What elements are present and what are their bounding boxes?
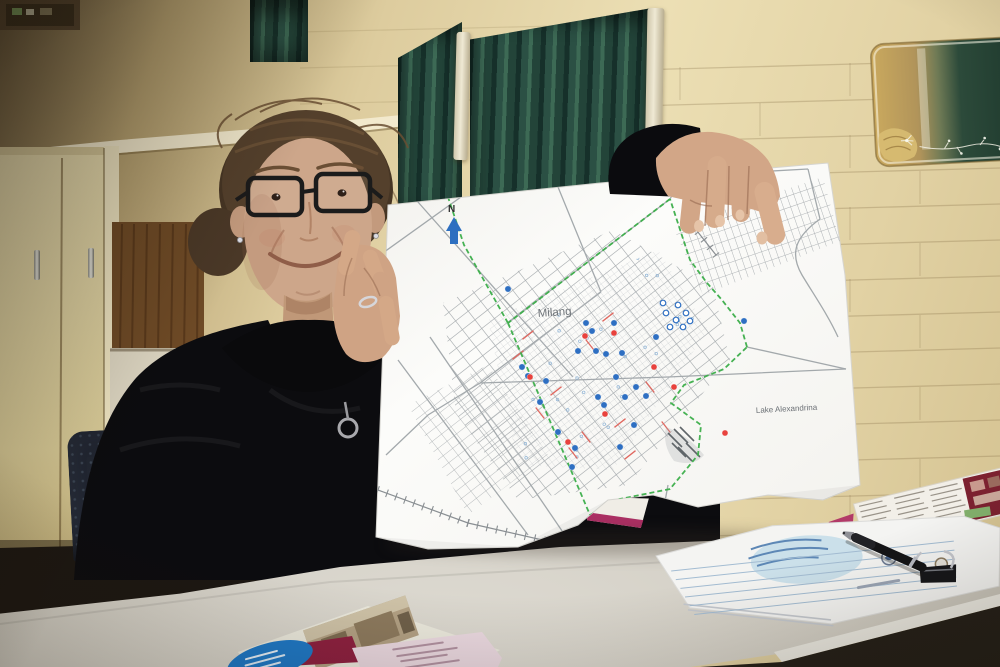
right-nail-2 <box>715 215 725 227</box>
right-thumb-nail <box>757 232 768 245</box>
hands-layer <box>0 0 1000 667</box>
left-hand <box>333 229 401 363</box>
photo-scene: N Milang Lake Alexandrina <box>0 0 1000 667</box>
right-nail-1 <box>694 220 704 232</box>
right-hand <box>656 132 787 247</box>
right-nail-3 <box>736 210 745 221</box>
